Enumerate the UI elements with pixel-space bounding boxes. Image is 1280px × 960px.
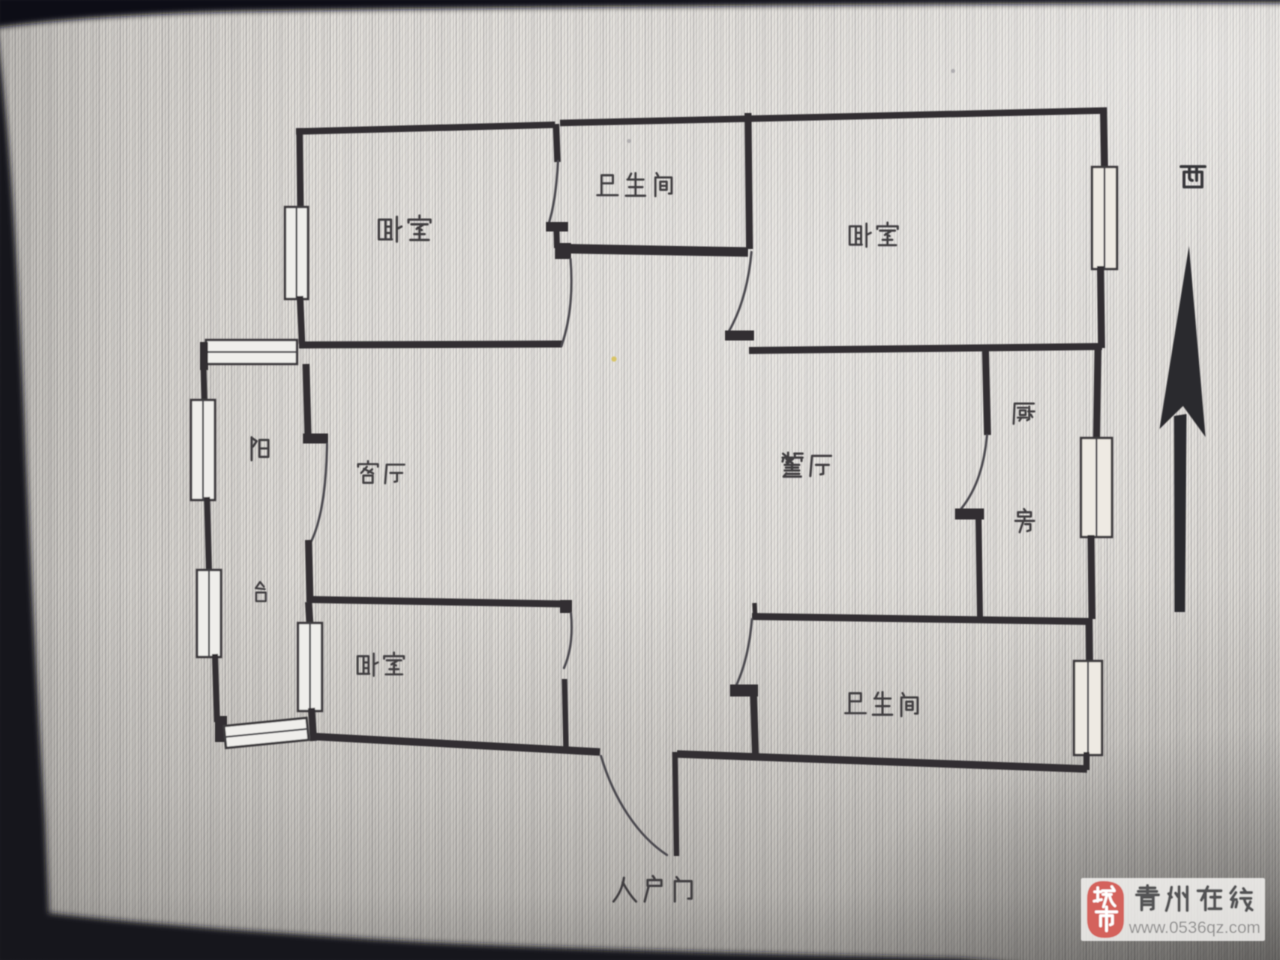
svg-text:www.0536qz.com: www.0536qz.com [1128,918,1261,937]
